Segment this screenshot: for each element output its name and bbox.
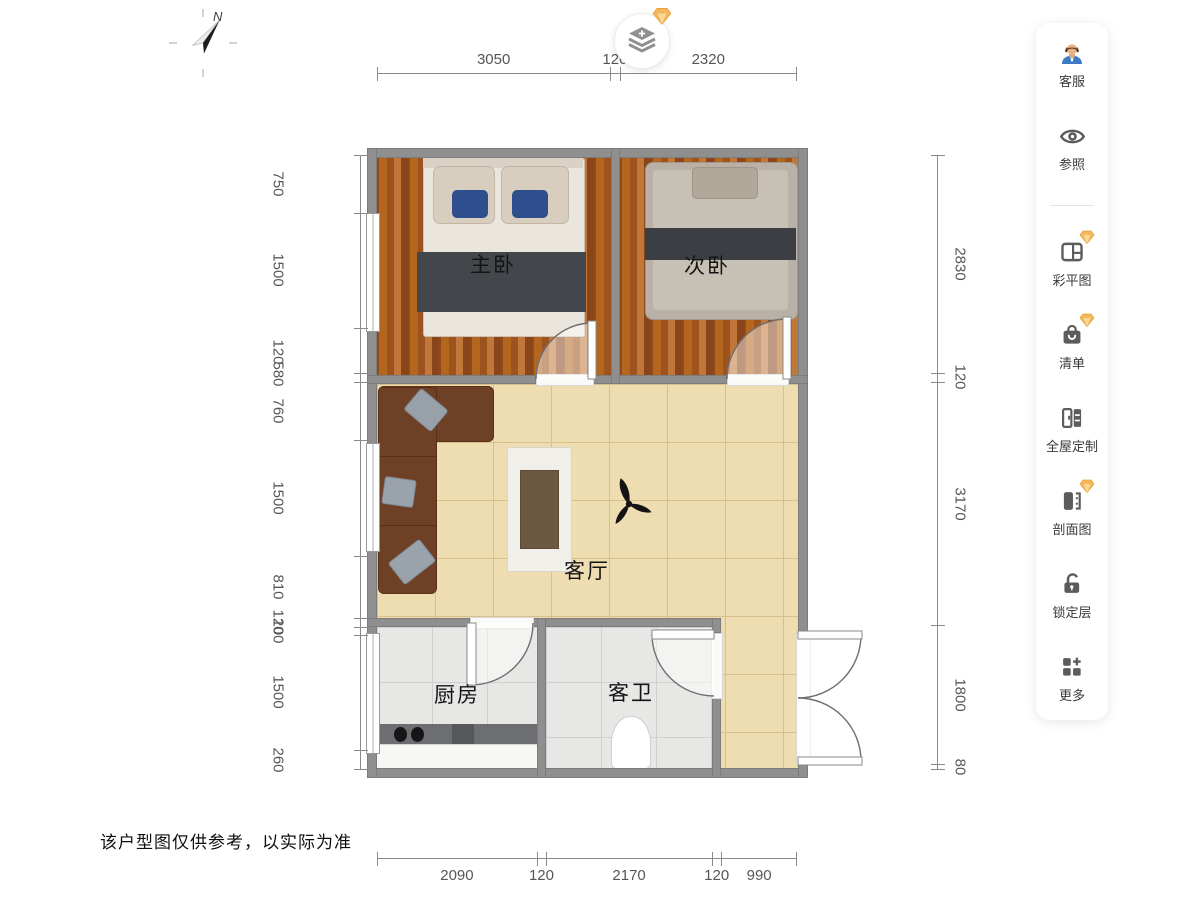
tool-sidebar: 客服 参照 xyxy=(1036,23,1108,720)
wall-bath-right-b xyxy=(712,697,721,778)
compass-icon: N xyxy=(166,6,240,80)
sidebar-item-color-plan[interactable]: 彩平图 xyxy=(1052,238,1091,289)
dim-label: 750 xyxy=(270,171,287,196)
sofa-cushion-2[interactable] xyxy=(381,476,417,508)
sidebar-item-label: 全屋定制 xyxy=(1046,436,1098,455)
kitchen-window[interactable] xyxy=(366,633,380,754)
dim-label: 3170 xyxy=(952,487,969,520)
kitchen-sink xyxy=(452,724,474,744)
sidebar-item-reference[interactable]: 参照 xyxy=(1058,122,1086,173)
second-bed-pillow[interactable] xyxy=(692,167,758,199)
wall-bottom xyxy=(367,768,808,778)
wall-kitchen-top-a xyxy=(367,618,470,627)
sidebar-item-label: 剖面图 xyxy=(1052,519,1091,538)
premium-gem-icon xyxy=(1079,313,1095,327)
stove-burner-2 xyxy=(411,727,424,742)
dim-label: 580 xyxy=(270,362,287,387)
floorplan-editor-canvas: N xyxy=(0,0,1200,900)
premium-gem-icon xyxy=(652,7,672,25)
living-room-label: 客厅 xyxy=(564,555,610,585)
master-bedroom-window[interactable] xyxy=(366,213,380,332)
more-grid-icon xyxy=(1059,654,1085,680)
dimension-right: 2830 120 3170 1800 80 xyxy=(937,155,938,770)
master-bedroom-label: 主卧 xyxy=(470,249,516,279)
dim-label: 810 xyxy=(270,574,287,599)
kitchen-cabinet[interactable] xyxy=(377,744,537,769)
reference-eye-icon xyxy=(1059,123,1086,150)
premium-gem-icon xyxy=(1079,479,1095,493)
master-blue-cushion-right[interactable] xyxy=(512,190,548,218)
wall-kitchen-top-b xyxy=(532,618,721,627)
dim-label: 120 xyxy=(529,867,554,884)
coffee-table-inlay xyxy=(520,470,559,549)
master-bedroom-door[interactable] xyxy=(530,315,600,385)
second-bedroom-door[interactable] xyxy=(722,313,794,385)
sidebar-item-more[interactable]: 更多 xyxy=(1058,653,1086,704)
dimension-bottom: 2090 120 2170 120 990 xyxy=(377,858,797,859)
bathroom-door[interactable] xyxy=(646,628,721,703)
stove-burner-1 xyxy=(394,727,407,742)
dim-label: 80 xyxy=(952,759,969,776)
entry-double-door[interactable] xyxy=(790,625,880,773)
premium-gem-icon xyxy=(1079,230,1095,244)
dim-label: 120 xyxy=(270,340,287,365)
bathroom-label: 客卫 xyxy=(608,677,654,707)
sidebar-item-label: 更多 xyxy=(1059,685,1085,704)
dim-label: 120 xyxy=(704,867,729,884)
sidebar-item-custom-cabinet[interactable]: 全屋定制 xyxy=(1046,404,1098,455)
master-blue-cushion-left[interactable] xyxy=(452,190,488,218)
dim-label: 760 xyxy=(270,398,287,423)
custom-cabinet-icon xyxy=(1059,405,1085,431)
sidebar-item-customer-service[interactable]: 客服 xyxy=(1058,39,1086,90)
sidebar-item-lock-layer[interactable]: 锁定层 xyxy=(1052,570,1091,621)
wall-right-upper xyxy=(798,148,808,633)
wall-top xyxy=(367,148,808,158)
dim-label: 260 xyxy=(270,747,287,772)
sidebar-item-label: 参照 xyxy=(1059,154,1085,173)
layers-plus-icon xyxy=(624,25,660,57)
sidebar-item-label: 锁定层 xyxy=(1052,602,1091,621)
second-bedroom-label: 次卧 xyxy=(684,250,730,280)
compass-north-label: N xyxy=(213,9,223,24)
dim-label: 100 xyxy=(270,618,287,643)
wall-bedrooms-living-a xyxy=(367,375,536,384)
toilet[interactable] xyxy=(611,716,651,770)
kitchen-label: 厨房 xyxy=(434,679,480,709)
dimension-left: 750 1500 580 120 760 1500 810 120 100 15… xyxy=(360,155,361,770)
dim-label: 1800 xyxy=(952,678,969,711)
dim-label: 120 xyxy=(952,365,969,390)
sidebar-item-label: 客服 xyxy=(1059,71,1085,90)
sidebar-item-list[interactable]: 清单 xyxy=(1058,321,1086,372)
dim-label: 2830 xyxy=(952,247,969,280)
dim-label: 3050 xyxy=(477,51,510,68)
disclaimer-text: 该户型图仅供参考，以实际为准 xyxy=(100,828,352,853)
sidebar-item-label: 清单 xyxy=(1059,353,1085,372)
dim-label: 990 xyxy=(747,867,772,884)
dim-label: 2320 xyxy=(692,51,725,68)
sidebar-item-section-view[interactable]: 剖面图 xyxy=(1052,487,1091,538)
ceiling-fan-icon[interactable] xyxy=(603,473,655,533)
dimension-top: 3050 120 2320 xyxy=(377,73,797,74)
dim-label: 2170 xyxy=(612,867,645,884)
wall-bedroom-separator xyxy=(611,148,620,384)
sidebar-item-label: 彩平图 xyxy=(1052,270,1091,289)
dim-label: 1500 xyxy=(270,676,287,709)
dim-label: 2090 xyxy=(440,867,473,884)
dim-label: 1500 xyxy=(270,254,287,287)
entry-floor[interactable] xyxy=(721,618,798,768)
living-room-window[interactable] xyxy=(366,443,380,552)
unlock-icon xyxy=(1059,571,1085,597)
dim-label: 1500 xyxy=(270,481,287,514)
sidebar-divider xyxy=(1050,205,1094,206)
customer-service-icon xyxy=(1058,39,1086,67)
